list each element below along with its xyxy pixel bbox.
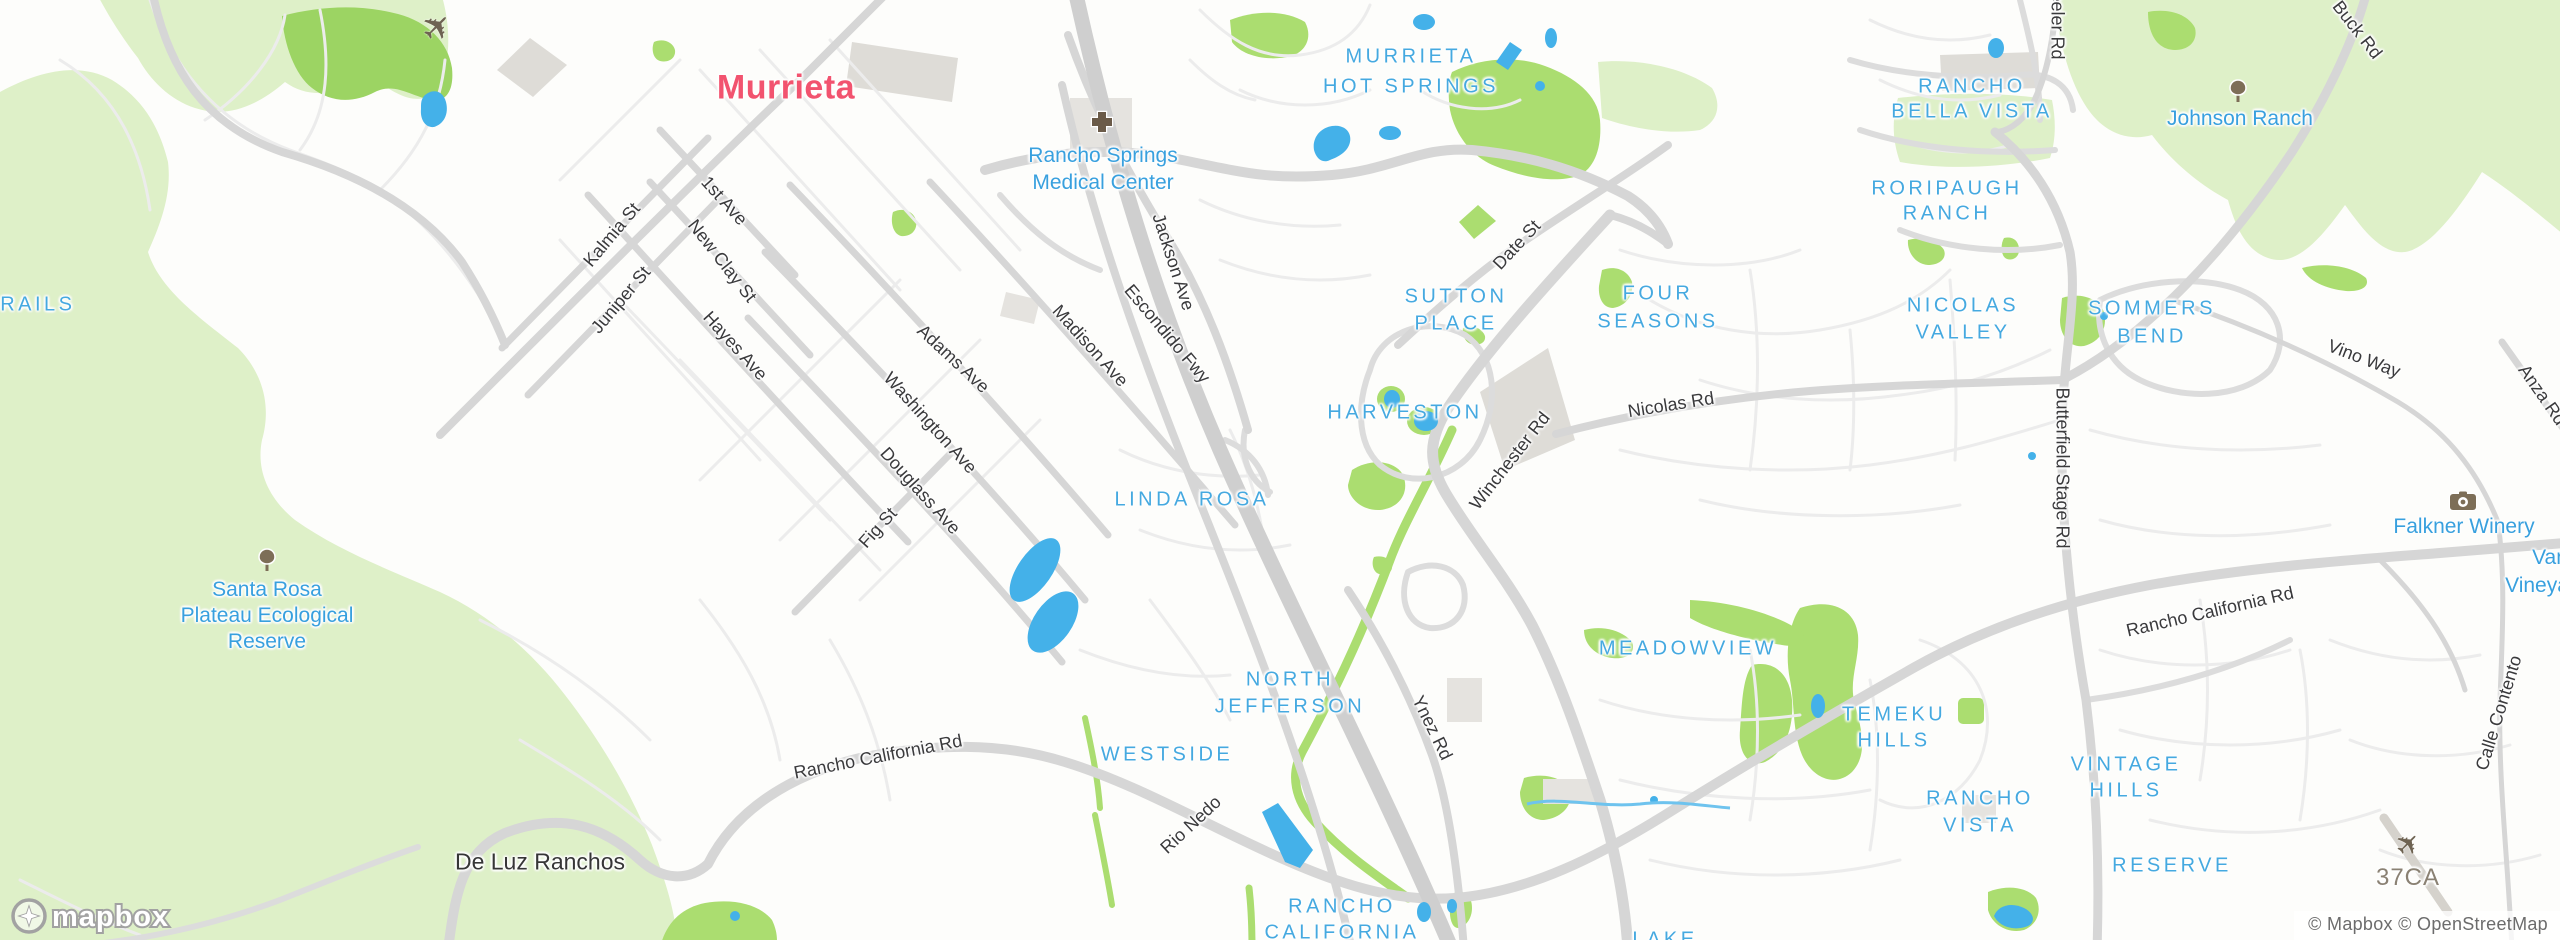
poi-label-ecological-reserve: Plateau Ecological (181, 604, 354, 628)
neighborhood-label: SEASONS (1597, 311, 1718, 334)
neighborhood-label: LINDA ROSA (1114, 489, 1269, 512)
neighborhood-label: PLACE (1414, 313, 1497, 336)
neighborhood-label: MURRIETA (1346, 46, 1477, 69)
neighborhood-label: RANCH (1903, 203, 1992, 226)
attribution-links[interactable]: © Mapbox © OpenStreetMap (2308, 914, 2548, 934)
neighborhood-label: RANCHO (1918, 76, 2026, 99)
neighborhood-label: NICOLAS (1907, 295, 2019, 318)
neighborhood-label: TRAILS (0, 294, 76, 317)
basemap-graphics (0, 0, 2560, 940)
mapbox-logo-text: mapbox (52, 901, 169, 933)
neighborhood-label: RESERVE (2112, 855, 2232, 878)
neighborhood-label: HILLS (1857, 730, 1930, 753)
poi-label-ecological-reserve: Santa Rosa (212, 578, 322, 602)
poi-label-falkner-winery: Falkner Winery (2393, 515, 2534, 539)
tree-icon (257, 548, 277, 574)
poi-label-medical-center: Medical Center (1032, 171, 1173, 195)
poi-label-vineyard: Vineya (2505, 574, 2560, 598)
tree-icon (2228, 79, 2248, 105)
neighborhood-label: BELLA VISTA (1891, 101, 2053, 124)
poi-label-ecological-reserve: Reserve (228, 630, 306, 654)
neighborhood-label: VALLEY (1915, 322, 2010, 345)
neighborhood-label: VISTA (1943, 815, 2017, 838)
neighborhood-label: NORTH (1246, 669, 1334, 692)
neighborhood-label: HOT SPRINGS (1323, 76, 1499, 99)
locality-label-de-luz-ranchos: De Luz Ranchos (455, 849, 625, 876)
neighborhood-label: RORIPAUGH (1871, 178, 2022, 201)
camera-icon (2448, 489, 2478, 513)
neighborhood-label: SOMMERS (2088, 298, 2216, 321)
neighborhood-label: SUTTON (1405, 286, 1508, 309)
neighborhood-label: RANCHO (1288, 896, 1396, 919)
neighborhood-label: HARVESTON (1327, 402, 1482, 425)
neighborhood-label: CALIFORNIA (1264, 922, 1419, 940)
neighborhood-label: MEADOWVIEW (1599, 638, 1777, 661)
neighborhood-label: HILLS (2089, 780, 2162, 803)
map-canvas[interactable]: Murrieta De Luz Ranchos MURRIETA HOT SPR… (0, 0, 2560, 940)
neighborhood-label: WESTSIDE (1101, 744, 1233, 767)
poi-label-johnson-ranch: Johnson Ranch (2167, 107, 2313, 131)
neighborhood-label: LAKE (1632, 929, 1697, 940)
poi-label-airfield-37ca: 37CA (2376, 864, 2440, 892)
mapbox-logo[interactable]: mapbox (8, 894, 188, 938)
poi-label-medical-center: Rancho Springs (1028, 144, 1177, 168)
neighborhood-label: RANCHO (1926, 788, 2034, 811)
street-label: Wheeler Rd (2047, 0, 2068, 60)
street-label: Butterfield Stage Rd (2052, 387, 2073, 548)
neighborhood-label: FOUR (1623, 283, 1694, 306)
poi-label-vineyard: Van (2532, 546, 2560, 570)
city-label-murrieta: Murrieta (717, 69, 855, 108)
neighborhood-label: JEFFERSON (1215, 696, 1365, 719)
neighborhood-label: VINTAGE (2071, 754, 2182, 777)
attribution-bar[interactable]: © Mapbox © OpenStreetMap (2294, 911, 2560, 940)
neighborhood-label: BEND (2117, 326, 2187, 349)
hospital-icon (1089, 109, 1115, 135)
neighborhood-label: TEMEKU (1842, 704, 1946, 727)
